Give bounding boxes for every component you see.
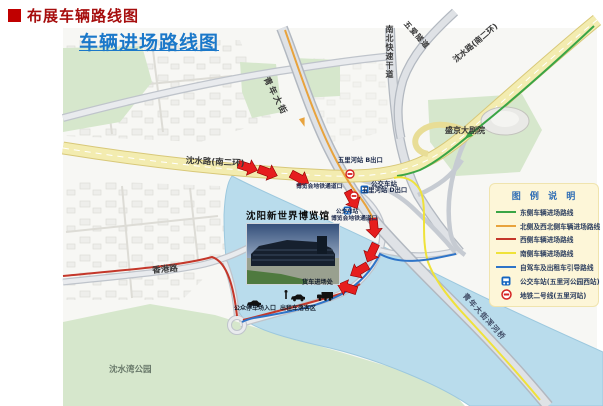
map-title: 车辆进场路线图 (79, 34, 219, 53)
legend-line-west (496, 238, 516, 240)
legend-item-west: 西侧车辆进场路线 (496, 233, 594, 247)
legend-item-bus: 公交车站(五里河公园西站) (496, 274, 594, 288)
road-label-northsouth-expressway: 南北快速干道 (385, 25, 393, 79)
legend-box: 图 例 说 明 东侧车辆进场路线 北侧及西北侧车辆进场路线 西侧车辆进场路线 南… (489, 183, 599, 307)
legend-line-guide (496, 266, 516, 268)
truck-icon (316, 286, 334, 305)
slide: 布展车辆路线图 (0, 0, 603, 406)
legend-item-north: 北侧及西北侧车辆进场路线 (496, 219, 594, 233)
legend-item-east: 东侧车辆进场路线 (496, 205, 594, 219)
metro-icon (496, 289, 516, 300)
venue-photo (246, 223, 340, 285)
place-label-expo-venue: 沈阳新世界博览馆 (246, 212, 330, 222)
legend-line-north (496, 225, 516, 227)
legend-item-guide: 自驾车及出租车引导路线 (496, 260, 594, 274)
expo-metro-passage-label-1: 博览会地铁通道口 (296, 185, 342, 191)
expo-metro-passage-label-2: 博览会地铁通道口 (331, 217, 377, 223)
taxi-dropoff-label: 出租车落客区 (280, 306, 316, 312)
metro-exit-b-label: 五里河站 B出口 (338, 158, 383, 164)
theatre-building (481, 107, 529, 135)
legend-title: 图 例 说 明 (496, 189, 594, 202)
legend-line-south (496, 252, 516, 254)
metro-exit-d-label: 五里河站 D出口 (362, 188, 407, 194)
bus-stop-label-2: 公交车站 (336, 210, 358, 216)
legend-item-south: 南侧车辆进场路线 (496, 246, 594, 260)
road-label-hongkong-road: 香港路 (152, 265, 178, 276)
place-label-shengjing-theatre: 盛京大剧院 (445, 127, 485, 135)
parking-entrance-label: 公众停车场入口 (234, 306, 276, 312)
bus-icon (496, 276, 516, 286)
place-label-shenshuiwan-park: 沈水湾公园 (109, 366, 152, 375)
legend-line-east (496, 211, 516, 213)
truck-entrance-label: 货车进场处 (302, 280, 333, 286)
legend-item-metro: 地铁二号线(五里河站) (496, 288, 594, 302)
metro-icon (345, 164, 355, 183)
